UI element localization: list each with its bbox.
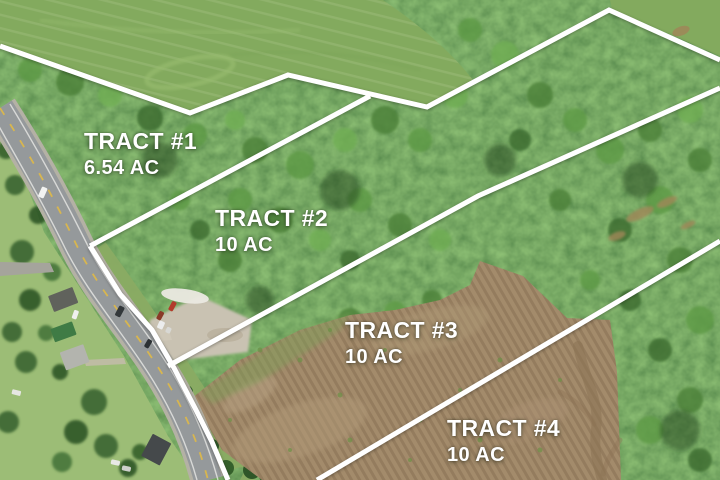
tract-3-name: TRACT #3 (345, 319, 458, 342)
aerial-property-photo: TRACT #1 6.54 AC TRACT #2 10 AC TRACT #3… (0, 0, 720, 480)
tract-3-acreage: 10 AC (345, 347, 458, 367)
photo-layers (0, 0, 720, 480)
tract-2-acreage: 10 AC (215, 235, 328, 255)
tract-1-name: TRACT #1 (84, 130, 197, 153)
tract-4-name: TRACT #4 (447, 417, 560, 440)
tract-4-acreage: 10 AC (447, 445, 560, 465)
tract-label-1: TRACT #1 6.54 AC (84, 130, 197, 178)
tract-label-2: TRACT #2 10 AC (215, 207, 328, 255)
tract-label-3: TRACT #3 10 AC (345, 319, 458, 367)
tract-1-acreage: 6.54 AC (84, 158, 197, 178)
tract-2-name: TRACT #2 (215, 207, 328, 230)
tract-label-4: TRACT #4 10 AC (447, 417, 560, 465)
